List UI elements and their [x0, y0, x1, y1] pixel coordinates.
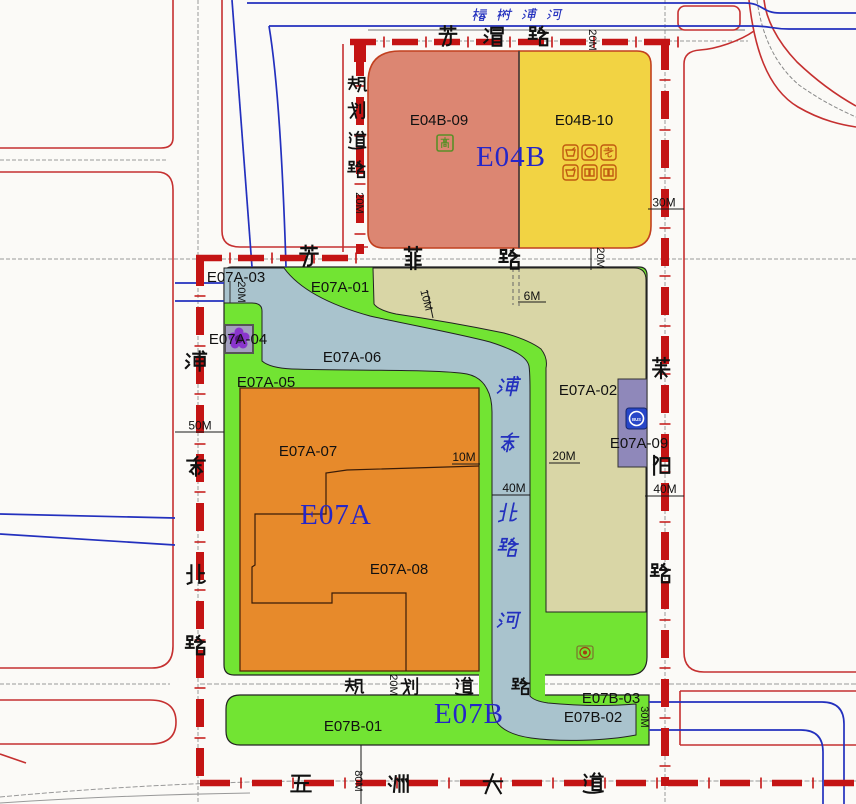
svg-text:E04B: E04B [476, 141, 546, 173]
svg-text:E07B-03: E07B-03 [582, 690, 640, 707]
svg-text:E07A-07: E07A-07 [279, 443, 337, 460]
svg-text:E07A: E07A [300, 499, 372, 531]
svg-text:20M: 20M [594, 247, 606, 268]
svg-text:E07A-03: E07A-03 [207, 269, 265, 286]
svg-text:E07A-06: E07A-06 [323, 349, 381, 366]
svg-text:40M: 40M [653, 482, 676, 496]
svg-text:E07A-05: E07A-05 [237, 374, 295, 391]
svg-text:20M: 20M [353, 192, 365, 213]
svg-text:6M: 6M [524, 289, 541, 303]
svg-text:E07B-01: E07B-01 [324, 718, 382, 735]
svg-text:E07A-09: E07A-09 [610, 435, 668, 452]
svg-text:10M: 10M [452, 450, 475, 464]
svg-text:80M: 80M [352, 770, 364, 791]
svg-text:20M: 20M [586, 29, 598, 50]
svg-text:E07A-02: E07A-02 [559, 382, 617, 399]
svg-text:50M: 50M [188, 419, 211, 433]
svg-text:20M: 20M [552, 449, 575, 463]
svg-text:30M: 30M [638, 706, 650, 727]
svg-text:E07A-08: E07A-08 [370, 561, 428, 578]
svg-text:20M: 20M [387, 674, 399, 695]
svg-text:E07A-01: E07A-01 [311, 279, 369, 296]
svg-text:E04B-09: E04B-09 [410, 112, 468, 129]
svg-text:BUS: BUS [632, 417, 641, 422]
svg-text:E07B: E07B [434, 698, 504, 730]
svg-text:40M: 40M [502, 481, 525, 495]
svg-text:30M: 30M [652, 196, 675, 210]
svg-text:E07A-04: E07A-04 [209, 331, 267, 348]
svg-text:E04B-10: E04B-10 [555, 112, 613, 129]
svg-text:E07B-02: E07B-02 [564, 709, 622, 726]
